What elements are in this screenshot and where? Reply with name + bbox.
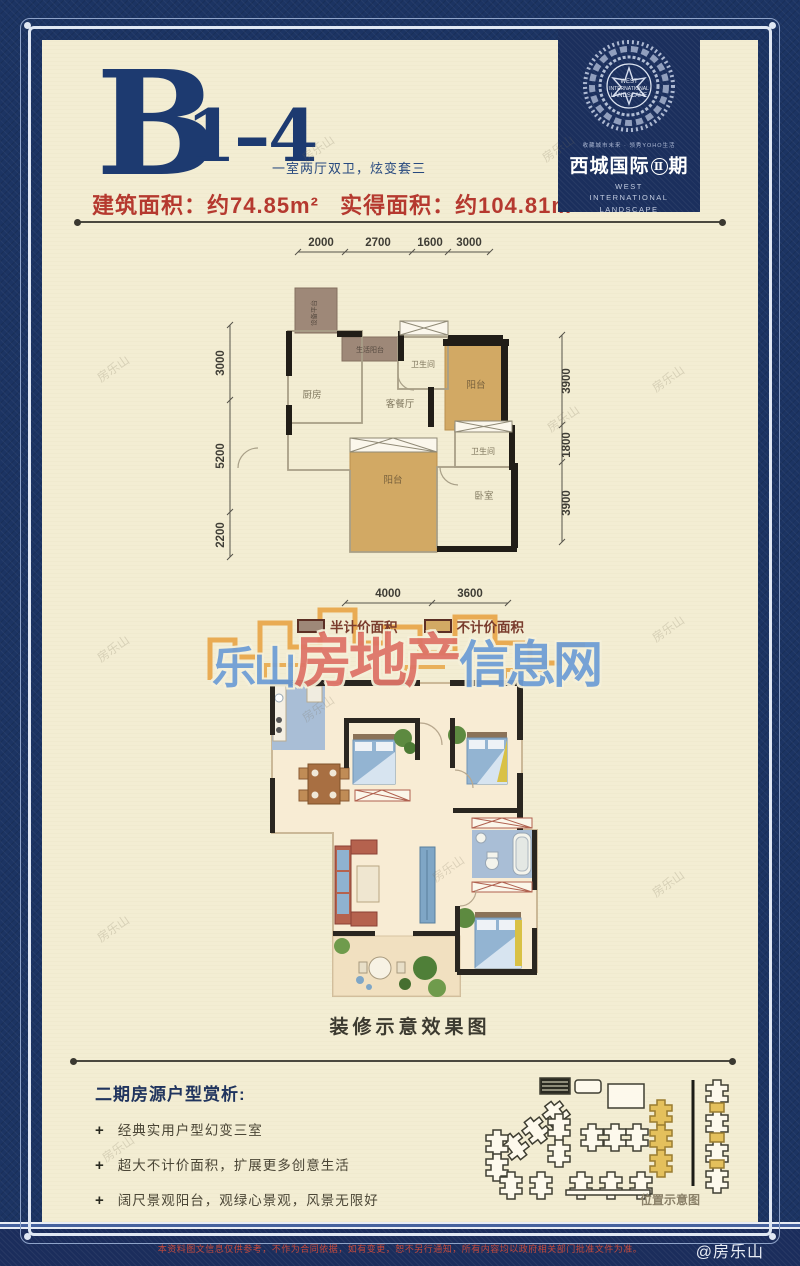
phase-suffix: 期	[669, 155, 689, 177]
logo-name-en: WEST INTERNATIONAL LANDSCAPE	[574, 181, 684, 215]
dim-label: 1600	[417, 237, 443, 249]
render-floorplan	[245, 678, 575, 1008]
logo-tagline: 收藏城市未来 · 领秀YOHO生活	[558, 141, 700, 149]
frame-corner-dot	[24, 22, 31, 29]
room-label: 客餐厅	[386, 398, 415, 410]
footer-stripes	[0, 1222, 800, 1231]
emblem-word: WEST	[620, 79, 638, 85]
flyer-page: B 1–4 一室两厅双卫，炫变套三 建筑面积：约74.85m² 实得面积：约10…	[0, 0, 800, 1266]
site-buildings-right	[706, 1080, 728, 1193]
emblem-word: INTERNATIONAL	[609, 86, 649, 92]
site-map-caption: 位置示意图	[640, 1192, 700, 1207]
highlighted-building	[650, 1100, 672, 1177]
frame-corner-dot	[769, 1233, 776, 1240]
dim-label: 3900	[561, 490, 573, 516]
unit-subtitle: 一室两厅双卫，炫变套三	[272, 158, 426, 177]
room-label: 设备平台	[309, 300, 318, 326]
site-buildings	[486, 1078, 652, 1199]
frame-corner-dot	[769, 22, 776, 29]
bullet-marker: +	[95, 1122, 104, 1139]
area-info: 建筑面积：约74.85m² 实得面积：约104.81m²	[92, 188, 594, 220]
emblem-word: LANDSCAPE	[611, 93, 647, 99]
brand-watermark-segment: 信息网	[459, 642, 600, 690]
bullet-marker: +	[95, 1192, 104, 1209]
room-label: 卧室	[474, 490, 493, 502]
analysis-title: 二期房源户型赏析:	[95, 1080, 445, 1105]
analysis-bullet: + 经典实用户型幻变三室	[95, 1119, 445, 1139]
header-divider	[76, 221, 724, 223]
schematic-floorplan: 设备平台 厨房 生活阳台 卫生间 阳台 客餐厅 卫生间 卧室 阳台 2000	[200, 235, 600, 615]
developer-logo: WEST INTERNATIONAL LANDSCAPE 收藏城市未来 · 领秀…	[558, 28, 700, 212]
site-location-map: 位置示意图	[478, 1072, 740, 1212]
analysis-block: 二期房源户型赏析: + 经典实用户型幻变三室 + 超大不计价面积，扩展更多创意生…	[95, 1080, 445, 1224]
section-divider	[72, 1060, 734, 1062]
footer-credit: @房乐山	[696, 1238, 764, 1262]
dim-label: 2000	[308, 237, 334, 249]
logo-name-cn: 西城国际	[569, 155, 649, 177]
legend-label: 不计价面积	[457, 616, 525, 636]
dim-label: 2200	[215, 522, 227, 548]
logo-name: 西城国际Ⅱ期	[558, 151, 700, 178]
footer-bar: 本资料图文信息仅供参考，不作为合同依据，如有变更，恕不另行通知，所有内容均以政府…	[0, 1222, 800, 1266]
room-label: 生活阳台	[356, 345, 384, 354]
bullet-text: 超大不计价面积，扩展更多创意生活	[118, 1154, 350, 1174]
dim-label: 3000	[215, 350, 227, 376]
brand-watermark-segment: 房地产	[294, 634, 459, 689]
dim-label: 5200	[215, 443, 227, 469]
actual-area: 实得面积：约104.81m²	[340, 193, 580, 218]
dim-label: 3000	[456, 237, 482, 249]
logo-emblem-icon: WEST INTERNATIONAL LANDSCAPE	[581, 38, 677, 134]
bullet-text: 经典实用户型幻变三室	[118, 1119, 263, 1139]
built-area: 建筑面积：约74.85m²	[92, 193, 319, 218]
room-label: 厨房	[302, 389, 321, 401]
bullet-marker: +	[95, 1157, 104, 1174]
bullet-text: 阔尺景观阳台，观绿心景观，风景无限好	[118, 1189, 379, 1209]
footer-disclaimer: 本资料图文信息仅供参考，不作为合同依据，如有变更，恕不另行通知，所有内容均以政府…	[0, 1242, 800, 1255]
room-label: 卫生间	[411, 359, 435, 369]
frame-corner-dot	[24, 1233, 31, 1240]
analysis-bullet: + 超大不计价面积，扩展更多创意生活	[95, 1154, 445, 1174]
render-caption: 装修示意效果图	[245, 1012, 575, 1039]
room-label: 卫生间	[471, 446, 495, 456]
dim-label: 1800	[561, 432, 573, 458]
brand-watermark: 乐山 房地产 信息网	[212, 634, 600, 690]
analysis-bullet: + 阔尺景观阳台，观绿心景观，风景无限好	[95, 1189, 445, 1209]
room-label: 阳台	[466, 379, 485, 391]
dim-label: 2700	[365, 237, 391, 249]
brand-watermark-segment: 乐山	[212, 648, 294, 690]
room-label: 阳台	[383, 474, 402, 486]
dim-label: 3900	[561, 368, 573, 394]
phase-number: Ⅱ	[651, 158, 668, 175]
